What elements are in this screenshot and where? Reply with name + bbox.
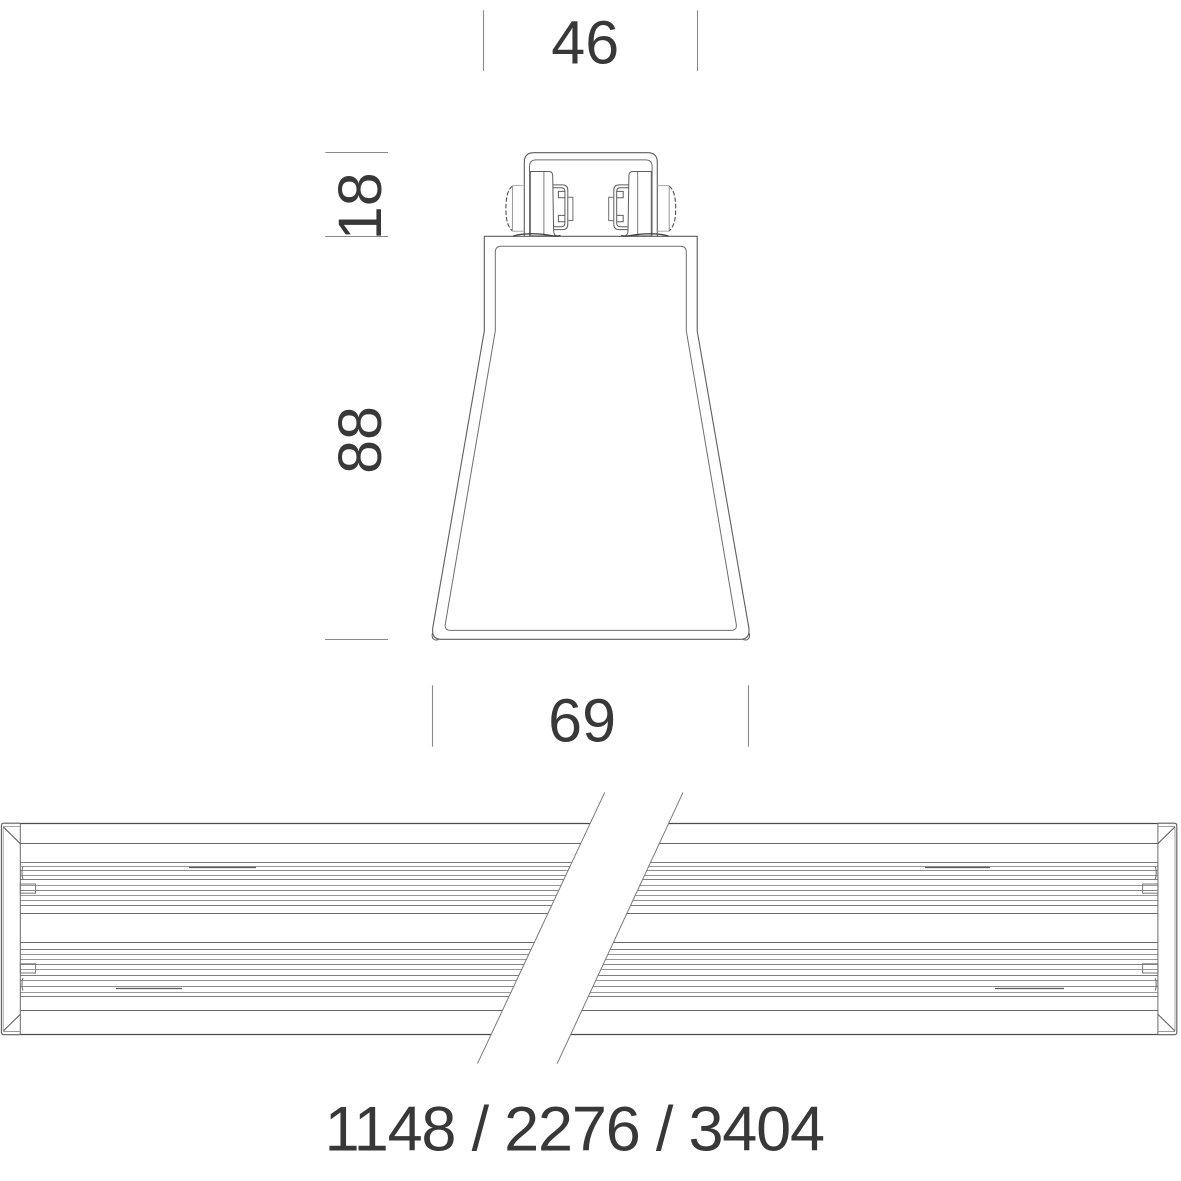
svg-text:18: 18 — [326, 172, 394, 240]
svg-text:69: 69 — [548, 686, 616, 754]
svg-text:1148 / 2276 / 3404: 1148 / 2276 / 3404 — [325, 1095, 824, 1165]
svg-text:46: 46 — [551, 9, 619, 77]
svg-text:88: 88 — [326, 406, 394, 474]
